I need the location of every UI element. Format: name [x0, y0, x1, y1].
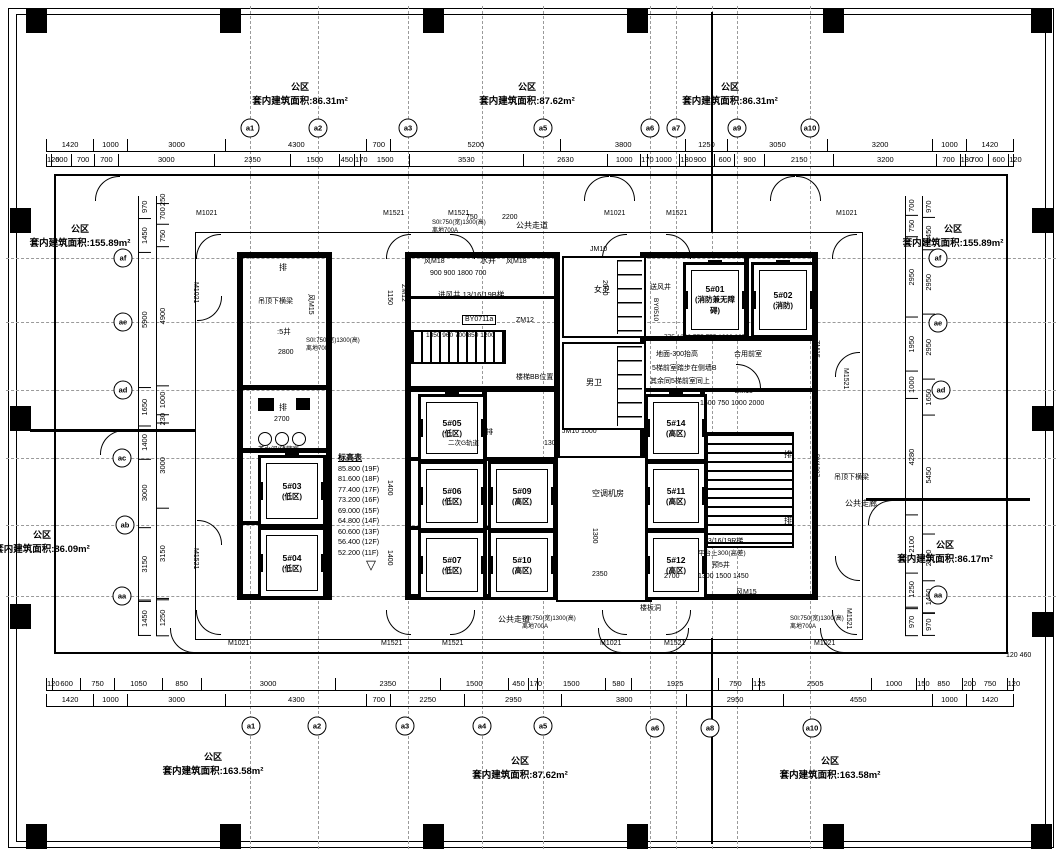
- dim-segment: 1500: [537, 678, 605, 691]
- annotation-label: M1521: [381, 640, 402, 648]
- dim-segment: 120: [1008, 154, 1014, 167]
- elevator-zone: (高区): [666, 496, 686, 507]
- area-value: 套内建筑面积:163.58m²: [745, 767, 915, 781]
- elevator-shaft: 5#01 (消防兼无障碍): [683, 262, 747, 338]
- dim-segment: 1500: [360, 154, 409, 167]
- elevator-name: 5#02: [774, 290, 793, 300]
- dim-segment: 600: [988, 154, 1008, 167]
- axis-bubble: a4: [473, 717, 492, 736]
- dim-segment: 1250: [156, 599, 169, 636]
- elevator-shaft: 5#10 (高区): [488, 530, 556, 600]
- elevator-car: 5#11 (高区): [653, 469, 699, 523]
- annotation-label: S0l:750(宽)1300(高): [790, 616, 844, 623]
- elevator-car: 5#14 (高区): [653, 402, 699, 454]
- dim-segment: 850: [162, 678, 201, 691]
- annotation-label: M1521: [841, 368, 849, 389]
- column-marker: [10, 406, 31, 431]
- dim-segment: 1450: [138, 219, 151, 253]
- dim-segment: 4550: [783, 694, 932, 707]
- dim-chain-left-inner: 25070075049001000230300031501250: [156, 196, 169, 636]
- dim-segment: 3800: [560, 139, 685, 152]
- area-zone-name: 公区: [645, 80, 815, 93]
- dim-segment: 1450: [922, 218, 935, 250]
- dim-segment: 450: [339, 154, 354, 167]
- axis-bubble: af: [929, 249, 948, 268]
- dim-segment: 700: [94, 154, 117, 167]
- axis-bubble: ad: [114, 381, 133, 400]
- annotation-label: 平台上300(高差): [698, 550, 746, 557]
- annotation-label: 离地700A: [522, 624, 548, 631]
- dim-segment: 3150: [156, 509, 169, 599]
- sink-circle: [292, 432, 306, 446]
- column-marker: [1032, 406, 1053, 431]
- dim-segment: 2505: [759, 678, 871, 691]
- elevator-shaft: 5#11 (高区): [645, 461, 707, 531]
- elevator-door-icon: [285, 453, 299, 458]
- dim-segment: 1000: [156, 386, 169, 415]
- elevator-door-icon: [669, 528, 683, 533]
- dim-segment: 750: [156, 225, 169, 247]
- dim-segment: 1420: [46, 694, 93, 707]
- axis-bubble: af: [114, 249, 133, 268]
- dim-segment: 600: [714, 154, 734, 167]
- dim-segment: 5900: [138, 253, 151, 388]
- area-zone-name: 公区: [435, 754, 605, 767]
- elevator-shaft: 5#05 (低区): [418, 394, 486, 462]
- axis-bubble: a10: [801, 119, 820, 138]
- axis-bubble: a3: [399, 119, 418, 138]
- annotation-label: M1021: [600, 640, 621, 648]
- annotation-label: BY0510: [652, 298, 659, 321]
- elevator-car: 5#09 (高区): [496, 469, 548, 523]
- annotation-label: BY0711a: [462, 315, 496, 325]
- elevator-door-icon: [445, 459, 459, 464]
- annotation-label: M1021: [196, 210, 217, 218]
- annotation-label: 楼梯BB位置: [516, 374, 553, 382]
- toilet-stalls: [617, 260, 642, 334]
- dim-segment: 1000: [905, 371, 918, 399]
- toilet-women: [562, 256, 646, 338]
- dim-segment: 1925: [631, 678, 717, 691]
- dim-segment: 1000: [93, 694, 127, 707]
- annotation-label: M1521: [191, 548, 199, 569]
- annotation-label: 离地700A: [432, 228, 458, 235]
- dim-chain-right-inner: 700750295019501000428021001250970: [905, 196, 918, 636]
- core-wall: [326, 252, 332, 600]
- dim-segment: 2250: [390, 694, 464, 707]
- dim-segment: 600: [51, 154, 71, 167]
- level-table-rows: 85.800 (19F)81.600 (18F)77.400 (17F)73.2…: [338, 464, 404, 558]
- area-label: 公区 套内建筑面积:87.62m²: [435, 754, 605, 781]
- dim-segment: 450: [508, 678, 529, 691]
- axis-bubble: a3: [396, 717, 415, 736]
- dim-chain-bottom-inner: 1206007501050850300023501500450170150058…: [46, 678, 1014, 691]
- level-table: 标高表 85.800 (19F)81.600 (18F)77.400 (17F)…: [338, 452, 404, 571]
- elevator-name: 5#07: [443, 555, 462, 565]
- facade-wall-bottom: [55, 652, 1007, 654]
- dim-segment: 120: [1007, 678, 1014, 691]
- level-row: 77.400 (17F): [338, 485, 404, 495]
- annotation-label: 1300 1500 1450: [698, 573, 749, 581]
- annotation-label: 地面-300抬高: [656, 351, 698, 359]
- elevator-door-icon: [669, 392, 683, 397]
- annotation-label: ZM12: [516, 317, 534, 325]
- dim-segment: 700: [936, 154, 959, 167]
- dim-chain-top-inner: 1206007007003000235015004501701500353026…: [46, 154, 1014, 167]
- level-row: 81.600 (18F): [338, 474, 404, 484]
- dim-segment: 1000: [93, 139, 127, 152]
- annotation-label: 其余同5梯前室同上: [650, 378, 710, 386]
- elevator-car: 5#07 (低区): [426, 538, 478, 592]
- elevator-name: 5#03: [283, 481, 302, 491]
- elevator-car: 5#10 (高区): [496, 538, 548, 592]
- annotation-label: 离地700A: [790, 624, 816, 631]
- dim-segment: 970: [922, 196, 935, 218]
- elevator-car: 5#06 (低区): [426, 469, 478, 523]
- axis-bubble: a2: [309, 119, 328, 138]
- partition-wall: [711, 12, 713, 233]
- level-row: 56.400 (12F): [338, 537, 404, 547]
- elevator-name: 5#06: [443, 486, 462, 496]
- core-wall: [640, 388, 818, 392]
- dim-segment: 3000: [127, 139, 226, 152]
- annotation-label: 空调机房: [592, 490, 624, 499]
- annotation-label: BY1207: [813, 454, 820, 477]
- dim-segment: 1000: [647, 154, 680, 167]
- annotation-label: 120 460: [1006, 652, 1031, 660]
- dim-segment: 150: [916, 678, 924, 691]
- elevator-car: 5#02 (消防): [759, 270, 807, 330]
- annotation-label: 1850 960 700 850 1200: [426, 332, 495, 339]
- elevator-shaft: 5#06 (低区): [418, 461, 486, 531]
- area-zone-name: 公区: [0, 528, 127, 541]
- sink-circle: [258, 432, 272, 446]
- annotation-label: M1521: [383, 210, 404, 218]
- dim-segment: 1420: [966, 694, 1014, 707]
- annotation-label: M1021: [836, 210, 857, 218]
- dim-segment: 4300: [225, 694, 366, 707]
- annotation-label: 13/16/19R梯: [704, 538, 743, 546]
- dim-segment: 1000: [932, 694, 966, 707]
- annotation-label: S0l:750(宽)1300(高): [306, 338, 360, 345]
- annotation-label: 合用前室: [734, 351, 762, 359]
- elevator-shaft: 5#09 (高区): [488, 461, 556, 531]
- annotation-label: 茶水间/储藏室: [258, 446, 299, 453]
- dim-segment: 1500: [440, 678, 508, 691]
- annotation-label: 1300: [590, 528, 598, 544]
- dim-segment: 3000: [201, 678, 335, 691]
- area-label: 公区 套内建筑面积:87.62m²: [442, 80, 612, 107]
- dim-segment: 4280: [905, 399, 918, 515]
- elevator-shaft: 5#14 (高区): [645, 394, 707, 462]
- axis-bubble: a1: [242, 717, 261, 736]
- annotation-label: 2000: [600, 280, 608, 296]
- dim-segment: 1000: [932, 139, 966, 152]
- axis-bubble: a5: [534, 717, 553, 736]
- annotation-label: 水井: [480, 257, 496, 266]
- axis-bubble: ab: [116, 516, 135, 535]
- dim-segment: 1650: [138, 388, 151, 426]
- annotation-label: M1521: [442, 640, 463, 648]
- elevator-car: 5#03 (低区): [266, 463, 318, 519]
- dim-segment: 1250: [905, 573, 918, 608]
- elevator-zone: (低区): [282, 491, 302, 502]
- level-table-title: 标高表: [338, 452, 404, 463]
- annotation-label: S0l:750(宽)1300(高): [432, 220, 486, 227]
- annotation-label: 排: [784, 517, 792, 526]
- elevator-shaft: 5#07 (低区): [418, 530, 486, 600]
- column-marker: [1031, 824, 1052, 849]
- dim-segment: 250: [156, 196, 169, 204]
- area-value: 套内建筑面积:86.31m²: [215, 93, 385, 107]
- column-marker: [220, 824, 241, 849]
- annotation-label: 风M15: [306, 294, 314, 315]
- dim-segment: 3000: [138, 459, 151, 528]
- dim-segment: 970: [905, 608, 918, 636]
- elevator-name: 5#05: [443, 418, 462, 428]
- dim-segment: 1000: [607, 154, 640, 167]
- dim-segment: 970: [138, 196, 151, 219]
- area-zone-name: 公区: [215, 80, 385, 93]
- pantry-fixture: [296, 398, 310, 410]
- area-value: 套内建筑面积:87.62m²: [435, 767, 605, 781]
- stair-flight: [706, 432, 794, 548]
- elevator-name: 5#11: [667, 486, 685, 496]
- floor-plan-sheet: a1a2a3a5a6a7a9a10a1a2a3a4a5a6a8a10afaead…: [0, 0, 1062, 855]
- axis-bubble: a10: [803, 719, 822, 738]
- area-zone-name: 公区: [128, 750, 298, 763]
- dim-segment: 700: [156, 204, 169, 225]
- area-label: 公区 套内建筑面积:86.31m²: [215, 80, 385, 107]
- elevator-zone: (消防兼无障碍): [692, 294, 738, 316]
- dim-segment: 3000: [156, 423, 169, 509]
- elevator-shaft: 5#02 (消防): [751, 262, 815, 338]
- dim-segment: 200: [962, 678, 972, 691]
- column-marker: [10, 604, 31, 629]
- dim-segment: 1400: [138, 427, 151, 460]
- dim-segment: 3200: [833, 154, 936, 167]
- area-label: 公区 套内建筑面积:86.17m²: [860, 538, 1030, 565]
- axis-bubble: a7: [667, 119, 686, 138]
- dim-segment: 580: [605, 678, 632, 691]
- dim-chain-bottom-outer: 1420100030004300700225029503800295045501…: [46, 694, 1014, 707]
- elevator-door-icon: [515, 528, 529, 533]
- dim-segment: 2950: [905, 237, 918, 318]
- elevator-name: 5#09: [513, 486, 532, 496]
- core-wall: [237, 252, 243, 600]
- dim-segment: 2630: [523, 154, 608, 167]
- axis-bubble: aa: [929, 586, 948, 605]
- annotation-label: M1021: [814, 640, 835, 648]
- core-wall: [405, 252, 411, 600]
- dim-segment: 700: [366, 694, 390, 707]
- dim-segment: 5450: [922, 416, 935, 535]
- level-row: 64.800 (14F): [338, 516, 404, 526]
- area-zone-name: 公区: [860, 538, 1030, 551]
- level-row: 69.000 (15F): [338, 506, 404, 516]
- dim-segment: 970: [922, 613, 935, 636]
- elevator-door-icon: [445, 392, 459, 397]
- elevator-car: 5#12 (高区): [653, 538, 699, 592]
- elevator-name: 5#01: [706, 284, 725, 294]
- elevator-name: 5#04: [283, 553, 302, 563]
- annotation-label: JM10 1000: [562, 428, 597, 436]
- annotation-label: JM10: [590, 246, 607, 254]
- dim-segment: 5200: [390, 139, 560, 152]
- annotation-label: 2700: [664, 573, 680, 581]
- dim-segment: 900: [685, 154, 715, 167]
- annotation-label: 吊顶下横梁: [258, 298, 293, 306]
- annotation-label: M1521: [844, 608, 852, 629]
- toilet-men: [562, 342, 646, 430]
- area-label: 公区 套内建筑面积:155.89m²: [868, 222, 1038, 249]
- annotation-label: 二次G轨道: [448, 440, 479, 447]
- annotation-label: 2350: [592, 571, 608, 579]
- down-arrow-icon: ▽: [338, 558, 404, 571]
- elevator-door-icon: [776, 260, 790, 265]
- column-marker: [627, 8, 648, 33]
- axis-bubble: ad: [932, 381, 951, 400]
- elevator-zone: (高区): [512, 496, 532, 507]
- area-value: 套内建筑面积:163.58m²: [128, 763, 298, 777]
- dim-segment: 850: [924, 678, 963, 691]
- elevator-name: 5#12: [667, 555, 686, 565]
- area-label: 公区 套内建筑面积:86.31m²: [645, 80, 815, 107]
- annotation-label: 离地700A: [306, 346, 332, 353]
- sink-circle: [275, 432, 289, 446]
- elevator-shaft: 5#03 (低区): [258, 455, 326, 527]
- area-value: 套内建筑面积:155.89m²: [868, 235, 1038, 249]
- dim-segment: 2150: [764, 154, 833, 167]
- annotation-label: M1521: [666, 210, 687, 218]
- column-marker: [1031, 8, 1052, 33]
- column-marker: [26, 8, 47, 33]
- dim-segment: 1500: [290, 154, 339, 167]
- dim-segment: 2950: [686, 694, 783, 707]
- dim-segment: 4300: [225, 139, 366, 152]
- dim-segment: 700: [366, 139, 390, 152]
- annotation-label: 风M18: [424, 258, 445, 266]
- area-label: 公区 套内建筑面积:86.09m²: [0, 528, 127, 555]
- dim-segment: 3000: [118, 154, 215, 167]
- annotation-label: 5梯前室踏步在侧墙B: [652, 365, 717, 373]
- dim-chain-top-outer: 1420100030004300700520038001250305032001…: [46, 139, 1014, 152]
- elevator-door-icon: [708, 260, 722, 265]
- area-zone-name: 公区: [868, 222, 1038, 235]
- annotation-label: 公共走道: [516, 222, 548, 231]
- core-wall: [237, 385, 332, 390]
- level-row: 73.200 (16F): [338, 495, 404, 505]
- elevator-name: 5#14: [667, 418, 686, 428]
- axis-bubble: aa: [113, 587, 132, 606]
- area-value: 套内建筑面积:87.62m²: [442, 93, 612, 107]
- annotation-label: 775 1300 775 775 1300 825: [664, 334, 745, 341]
- dim-segment: 750: [972, 678, 1006, 691]
- elevator-door-icon: [669, 459, 683, 464]
- annotation-label: 排: [486, 429, 493, 437]
- axis-bubble: a6: [641, 119, 660, 138]
- column-marker: [423, 824, 444, 849]
- level-row: 60.600 (13F): [338, 527, 404, 537]
- annotation-label: ZM15: [735, 388, 753, 396]
- axis-bubble: ae: [929, 314, 948, 333]
- elevator-shaft: 5#12 (高区): [645, 530, 707, 600]
- annotation-label: 1150: [385, 290, 393, 305]
- annotation-label: 排: [279, 264, 287, 273]
- elevator-car: 5#04 (低区): [266, 535, 318, 591]
- dim-segment: 170: [528, 678, 537, 691]
- area-value: 套内建筑面积:86.31m²: [645, 93, 815, 107]
- area-zone-name: 公区: [745, 754, 915, 767]
- dim-segment: 900: [734, 154, 764, 167]
- annotation-label: 排: [279, 404, 287, 413]
- toilet-stalls: [617, 346, 642, 426]
- elevator-car: 5#01 (消防兼无障碍): [691, 270, 739, 330]
- dim-segment: 600: [52, 678, 80, 691]
- annotation-label: M1021: [604, 210, 625, 218]
- dim-segment: 1450: [138, 601, 151, 636]
- dim-segment: 3150: [138, 528, 151, 601]
- annotation-label: 楼板洞: [640, 605, 661, 613]
- dim-segment: 230: [156, 416, 169, 424]
- annotation-label: 风M18: [506, 258, 527, 266]
- column-marker: [823, 824, 844, 849]
- dim-segment: 4900: [156, 247, 169, 386]
- facade-wall-top: [55, 174, 1007, 176]
- elevator-door-icon: [285, 525, 299, 530]
- axis-bubble: a9: [728, 119, 747, 138]
- elevator-zone: (低区): [442, 428, 462, 439]
- dim-segment: 2350: [214, 154, 290, 167]
- annotation-label: 风M15: [736, 589, 757, 597]
- dim-segment: 700: [71, 154, 94, 167]
- annotation-label: 男卫: [586, 379, 602, 388]
- dim-segment: 3000: [127, 694, 226, 707]
- area-value: 套内建筑面积:86.17m²: [860, 551, 1030, 565]
- elevator-zone: (低区): [442, 496, 462, 507]
- area-label: 公区 套内建筑面积:163.58m²: [128, 750, 298, 777]
- dim-segment: 750: [718, 678, 752, 691]
- annotation-label: M1521: [664, 640, 685, 648]
- annotation-label: 进风井 13/16/19B梯: [438, 291, 504, 299]
- ac-machine-room: [556, 456, 652, 602]
- elevator-shaft: 5#04 (低区): [258, 527, 326, 599]
- elevator-zone: (消防): [773, 300, 793, 311]
- column-marker: [627, 824, 648, 849]
- axis-bubble: a1: [241, 119, 260, 138]
- annotation-label: 排: [784, 451, 792, 460]
- annotation-label: S0l:750(宽)1300(高): [522, 616, 576, 623]
- annotation-label: 900 900 1800 700: [430, 270, 486, 278]
- column-marker: [26, 824, 47, 849]
- axis-bubble: a5: [534, 119, 553, 138]
- dim-segment: 2100: [905, 516, 918, 574]
- column-marker: [220, 8, 241, 33]
- dim-segment: 2950: [464, 694, 561, 707]
- dim-segment: 1250: [685, 139, 727, 152]
- area-zone-name: 公区: [442, 80, 612, 93]
- dim-segment: 1000: [871, 678, 916, 691]
- dim-segment: 1050: [114, 678, 162, 691]
- area-value: 套内建筑面积:86.09m²: [0, 541, 127, 555]
- dim-segment: 750: [80, 678, 114, 691]
- elevator-name: 5#10: [513, 555, 532, 565]
- dim-segment: 2350: [335, 678, 440, 691]
- partition-wall: [711, 638, 713, 844]
- elevator-zone: (低区): [282, 563, 302, 574]
- dim-segment: 750: [905, 216, 918, 237]
- dim-chain-left-outer: 9701450590016501400300031501450: [138, 196, 151, 636]
